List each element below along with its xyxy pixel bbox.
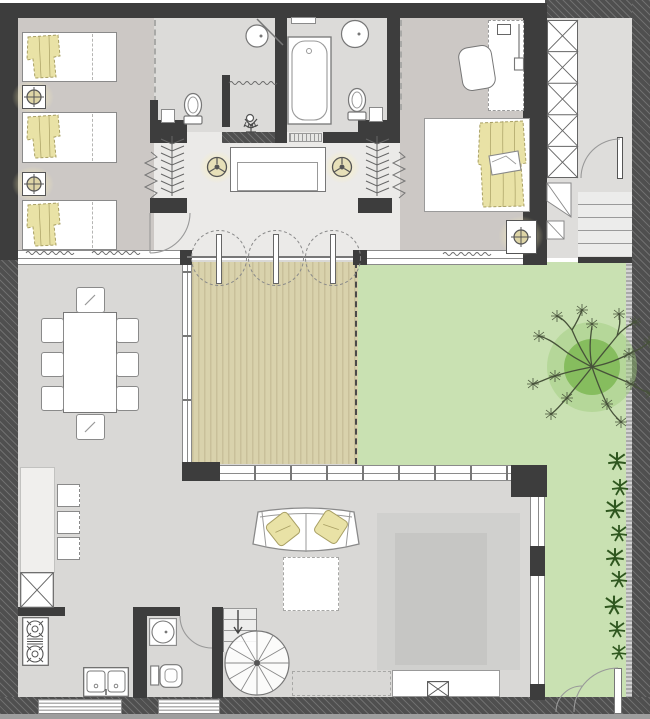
bed-blanket xyxy=(26,202,74,248)
lamp-icon xyxy=(509,225,533,249)
bathroom-shelf xyxy=(291,17,316,24)
door-swing-arc xyxy=(577,135,622,180)
coffee-table xyxy=(283,557,339,611)
lamp-icon xyxy=(22,172,46,196)
wall-kitchen-stub xyxy=(18,607,65,616)
exterior-wall-left-lower xyxy=(0,260,18,719)
dining-chair xyxy=(41,352,64,377)
door-swing-arc xyxy=(146,209,192,255)
ceiling-lamp-icon xyxy=(330,155,354,179)
bed-blanket xyxy=(26,114,74,160)
bathroom2-door-mat xyxy=(289,133,322,142)
bed-blanket xyxy=(26,34,74,80)
timber-deck xyxy=(192,262,358,464)
sofa xyxy=(252,503,360,559)
pillow-divider xyxy=(92,202,93,248)
bathtub-icon xyxy=(287,36,332,125)
glass-partition-dashed xyxy=(154,20,156,102)
ceiling-lamp-icon xyxy=(205,155,229,179)
wall-living-ne-block xyxy=(511,465,547,497)
tv-icon xyxy=(427,681,449,697)
shower-curtain-icon xyxy=(229,80,273,87)
curtain-icon xyxy=(443,251,493,258)
wall-segment xyxy=(530,684,545,700)
door-swing-arc xyxy=(176,612,216,652)
bar-stool xyxy=(57,537,80,560)
console-table-inner xyxy=(237,162,318,191)
corner-shelf-icon xyxy=(255,17,285,47)
wall-deck-sw-block xyxy=(182,462,220,481)
exterior-wall-top xyxy=(3,3,545,18)
exterior-wall-left-upper xyxy=(0,3,18,260)
toilet-icon xyxy=(150,664,183,688)
glass-partition-dashed xyxy=(400,20,402,110)
bathroom-bin xyxy=(161,109,175,123)
wall-segment xyxy=(358,198,392,213)
floor-plan xyxy=(0,0,650,719)
bottom-wall-window-2 xyxy=(158,699,220,714)
dining-table xyxy=(63,312,117,413)
stair-winders xyxy=(546,179,576,243)
pillow-divider xyxy=(92,34,93,80)
dining-chair xyxy=(116,386,139,411)
bar-stool xyxy=(57,484,80,507)
living-east-window-1 xyxy=(530,497,545,546)
garden-gate-swing-arcs xyxy=(552,664,622,716)
wall-wc-west xyxy=(133,607,147,698)
door-leaf xyxy=(330,234,336,284)
washbasin-icon xyxy=(340,19,370,49)
x-shelving-unit xyxy=(547,20,578,178)
dining-chair xyxy=(41,386,64,411)
wardrobe-rail-icon xyxy=(158,134,187,198)
kitchen-sink-icon xyxy=(83,667,129,697)
toilet-icon xyxy=(346,87,368,123)
curtain-icon xyxy=(92,250,142,257)
shrub-row xyxy=(600,448,640,663)
dumbwaiter-icon xyxy=(20,572,54,608)
stove-icon xyxy=(22,617,49,666)
potted-plant-icon xyxy=(242,116,260,133)
rug-inner xyxy=(395,533,487,665)
sideboard xyxy=(292,671,391,696)
pendant-lamp-icon xyxy=(512,24,526,74)
bottom-wall-window-1 xyxy=(38,699,122,714)
pillow-divider xyxy=(92,114,93,161)
washbasin-icon xyxy=(149,618,177,646)
dining-chair xyxy=(116,352,139,377)
staircase-steps xyxy=(578,192,632,256)
kitchen-counter xyxy=(20,467,55,573)
wall-segment xyxy=(530,546,545,576)
dining-chair xyxy=(116,318,139,343)
wardrobe-rail-icon xyxy=(363,134,392,198)
wall-segment xyxy=(222,132,275,143)
wall-stairhall-south xyxy=(578,257,632,263)
desk-monitor xyxy=(497,24,511,35)
folding-door-icon xyxy=(144,152,158,198)
chair-mark xyxy=(82,292,98,308)
chair-mark xyxy=(82,419,98,435)
dining-chair xyxy=(41,318,64,343)
bathroom-bin xyxy=(369,107,383,122)
bed-pillow xyxy=(486,148,524,178)
deck-roof-edge-dashed xyxy=(355,262,357,464)
living-east-window-2 xyxy=(530,576,545,684)
garden-tree xyxy=(527,302,650,432)
door-leaf xyxy=(273,234,279,284)
living-room-north-glass-wall xyxy=(220,465,511,481)
folding-door-icon xyxy=(392,152,406,198)
dining-deck-glass-wall xyxy=(182,265,192,463)
desk-chair xyxy=(457,44,497,93)
curtain-icon xyxy=(26,250,76,257)
door-leaf xyxy=(216,234,222,284)
lamp-icon xyxy=(22,85,46,109)
bar-stool xyxy=(57,511,80,534)
toilet-icon xyxy=(182,92,204,126)
spiral-staircase xyxy=(223,629,291,697)
